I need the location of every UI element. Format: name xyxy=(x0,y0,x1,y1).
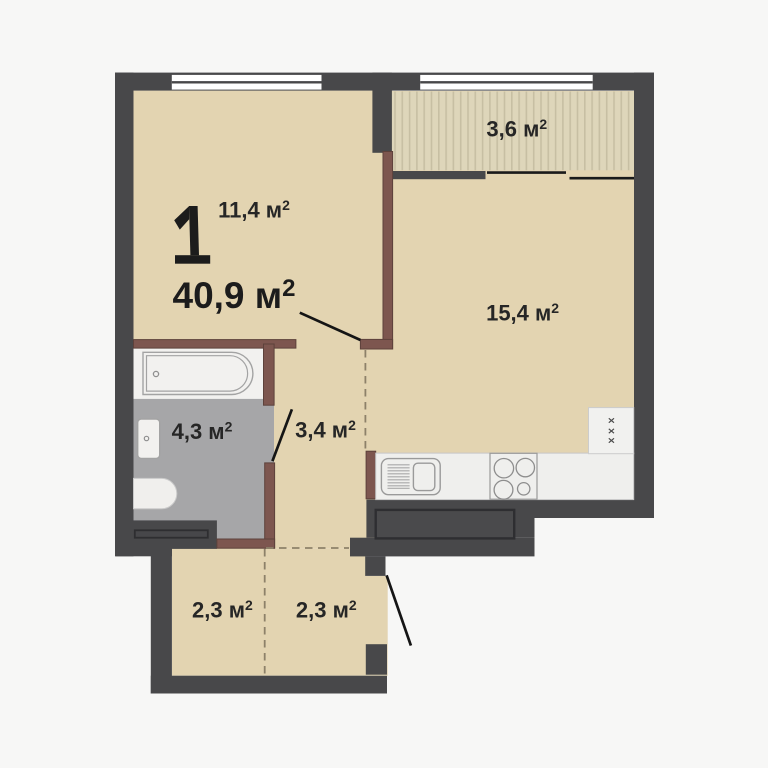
svg-text:2,3 м2: 2,3 м2 xyxy=(296,597,357,623)
svg-text:3,6 м2: 3,6 м2 xyxy=(486,116,547,142)
svg-text:3,4 м2: 3,4 м2 xyxy=(295,417,356,443)
svg-text:15,4 м2: 15,4 м2 xyxy=(486,300,559,326)
svg-text:40,9 м2: 40,9 м2 xyxy=(173,275,296,316)
svg-text:11,4 м2: 11,4 м2 xyxy=(218,197,290,223)
svg-text:4,3 м2: 4,3 м2 xyxy=(172,419,233,445)
svg-text:2,3 м2: 2,3 м2 xyxy=(192,597,253,623)
